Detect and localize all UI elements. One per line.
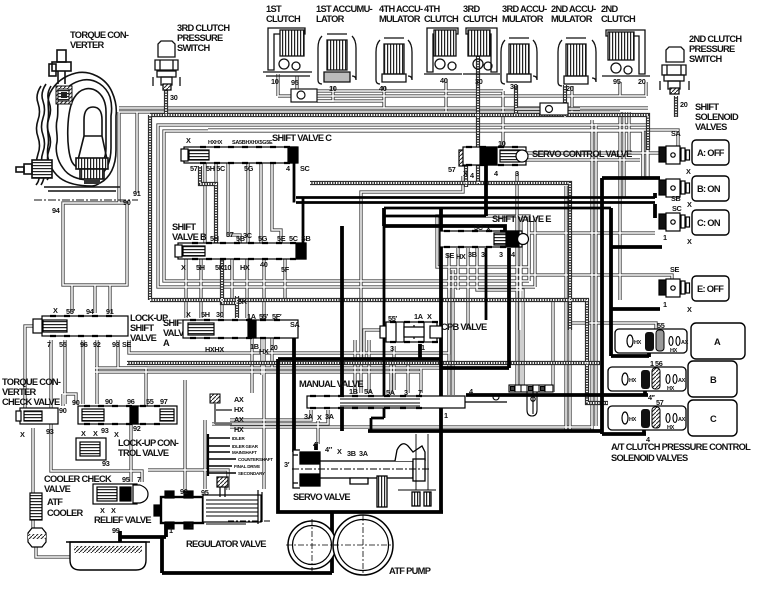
- svg-text:B: ON: B: ON: [697, 184, 721, 194]
- svg-text:2ND: 2ND: [601, 4, 618, 14]
- svg-text:93: 93: [101, 426, 109, 435]
- svg-text:C: ON: C: ON: [697, 218, 721, 228]
- svg-text:SWITCH: SWITCH: [177, 43, 210, 53]
- svg-text:3: 3: [499, 250, 503, 259]
- svg-text:5C: 5C: [289, 234, 299, 243]
- svg-text:SE: SE: [122, 340, 132, 349]
- svg-text:30: 30: [170, 93, 178, 102]
- svg-text:SE: SE: [445, 251, 455, 260]
- svg-text:SOLENOID: SOLENOID: [695, 112, 739, 122]
- svg-text:3A: 3A: [325, 412, 335, 421]
- svg-text:X: X: [53, 306, 58, 315]
- svg-text:CHECK VALVE: CHECK VALVE: [2, 397, 60, 407]
- svg-text:1: 1: [421, 343, 425, 352]
- svg-text:X: X: [111, 506, 116, 515]
- svg-text:1A: 1A: [414, 312, 424, 321]
- svg-text:5B: 5B: [236, 234, 245, 243]
- svg-text:90: 90: [123, 198, 131, 207]
- svg-text:2ND CLUTCH: 2ND CLUTCH: [689, 34, 742, 44]
- svg-text:X: X: [687, 305, 692, 314]
- svg-text:1A: 1A: [247, 312, 257, 321]
- svg-text:X: X: [186, 310, 191, 319]
- svg-text:X: X: [100, 506, 105, 515]
- svg-text:CLUTCH: CLUTCH: [463, 14, 498, 24]
- svg-text:TORQUE CON-: TORQUE CON-: [2, 377, 61, 387]
- svg-text:55′: 55′: [388, 314, 397, 323]
- svg-text:AX: AX: [678, 417, 686, 423]
- svg-text:4′: 4′: [313, 440, 319, 449]
- svg-text:CPB VALVE: CPB VALVE: [441, 322, 487, 332]
- svg-text:HX: HX: [240, 263, 250, 272]
- svg-text:SHIFT: SHIFT: [130, 323, 154, 333]
- svg-text:3RD: 3RD: [463, 4, 480, 14]
- svg-text:4′′: 4′′: [648, 393, 655, 402]
- svg-text:40: 40: [260, 260, 268, 269]
- svg-text:VALVES: VALVES: [695, 122, 727, 132]
- svg-text:55′: 55′: [66, 307, 75, 316]
- svg-text:HX: HX: [670, 348, 678, 354]
- svg-text:4″: 4″: [325, 445, 333, 454]
- svg-text:SA5BHXHX5G5E: SA5BHXHX5G5E: [232, 140, 273, 146]
- svg-text:1: 1: [663, 233, 667, 242]
- svg-text:3B: 3B: [347, 449, 356, 458]
- svg-text:X: X: [687, 237, 692, 246]
- svg-text:92: 92: [93, 340, 101, 349]
- svg-text:AX: AX: [681, 340, 689, 346]
- svg-text:93: 93: [112, 340, 120, 349]
- svg-text:7: 7: [137, 475, 141, 484]
- svg-text:AX: AX: [234, 415, 244, 424]
- svg-text:COUNTERSHAFT: COUNTERSHAFT: [238, 457, 273, 462]
- svg-text:3: 3: [404, 388, 408, 397]
- svg-text:90: 90: [72, 398, 80, 407]
- svg-text:SC: SC: [672, 204, 683, 213]
- svg-text:A: A: [714, 337, 721, 347]
- svg-text:1B: 1B: [250, 342, 259, 351]
- svg-text:X: X: [81, 429, 86, 438]
- svg-text:3RD CLUTCH: 3RD CLUTCH: [177, 23, 230, 33]
- svg-text:E: OFF: E: OFF: [697, 284, 724, 294]
- svg-text:91: 91: [133, 189, 141, 198]
- svg-text:HXHX: HXHX: [205, 345, 224, 354]
- svg-text:VERTER: VERTER: [2, 387, 36, 397]
- svg-text:1: 1: [189, 521, 193, 530]
- svg-text:92: 92: [133, 424, 141, 433]
- svg-text:A/T CLUTCH PRESSURE CONTROL: A/T CLUTCH PRESSURE CONTROL: [611, 442, 751, 452]
- svg-text:90: 90: [105, 397, 113, 406]
- svg-text:7: 7: [47, 340, 51, 349]
- svg-text:X: X: [317, 413, 322, 422]
- svg-text:TORQUE CON-: TORQUE CON-: [70, 30, 129, 40]
- svg-text:SWITCH: SWITCH: [689, 54, 722, 64]
- svg-text:3′: 3′: [481, 250, 487, 259]
- svg-text:HX: HX: [234, 425, 244, 434]
- svg-text:X: X: [427, 312, 432, 321]
- svg-text:CLUTCH: CLUTCH: [424, 14, 459, 24]
- svg-text:3: 3: [515, 169, 519, 178]
- svg-text:AX: AX: [234, 395, 244, 404]
- svg-text:99: 99: [112, 526, 120, 535]
- svg-text:X: X: [463, 169, 468, 178]
- svg-text:CLUTCH: CLUTCH: [601, 14, 636, 24]
- svg-text:55: 55: [59, 340, 67, 349]
- svg-text:C: C: [710, 414, 717, 424]
- svg-text:93: 93: [46, 427, 54, 436]
- svg-text:COOLER: COOLER: [47, 508, 84, 518]
- svg-text:3: 3: [390, 344, 394, 353]
- svg-text:MULATOR: MULATOR: [502, 14, 544, 24]
- svg-text:10: 10: [498, 139, 506, 148]
- svg-text:SB: SB: [671, 194, 681, 203]
- svg-text:CLUTCH: CLUTCH: [266, 14, 301, 24]
- svg-text:7: 7: [418, 388, 422, 397]
- svg-text:5E: 5E: [277, 234, 286, 243]
- svg-text:3C: 3C: [474, 223, 484, 232]
- svg-text:X: X: [186, 136, 191, 145]
- svg-text:55: 55: [146, 397, 154, 406]
- svg-text:HX: HX: [634, 340, 642, 346]
- svg-text:93: 93: [102, 459, 110, 468]
- svg-text:MULATOR: MULATOR: [551, 14, 593, 24]
- svg-text:HXHX: HXHX: [208, 140, 223, 146]
- svg-text:20: 20: [638, 77, 646, 86]
- svg-text:1ST ACCUMU-: 1ST ACCUMU-: [316, 4, 373, 14]
- svg-text:2ND ACCU-: 2ND ACCU-: [551, 4, 596, 14]
- svg-text:20: 20: [680, 100, 688, 109]
- svg-text:SA: SA: [671, 129, 682, 138]
- svg-text:5F: 5F: [281, 265, 290, 274]
- svg-text:4TH: 4TH: [424, 4, 440, 14]
- svg-text:5H 5C: 5H 5C: [206, 164, 226, 173]
- svg-text:SOLENOID VALVES: SOLENOID VALVES: [611, 453, 688, 463]
- svg-text:1: 1: [169, 526, 173, 535]
- svg-text:1: 1: [663, 300, 667, 309]
- svg-text:HX: HX: [667, 386, 675, 392]
- svg-text:HX: HX: [629, 378, 637, 384]
- svg-text:1: 1: [444, 411, 448, 420]
- svg-text:MULATOR: MULATOR: [379, 14, 421, 24]
- svg-text:HX: HX: [234, 405, 244, 414]
- svg-text:5G: 5G: [244, 164, 254, 173]
- svg-text:5G: 5G: [258, 234, 268, 243]
- svg-text:5K10: 5K10: [215, 263, 231, 272]
- svg-text:AX: AX: [678, 378, 686, 384]
- svg-text:HX: HX: [629, 417, 637, 423]
- svg-text:X: X: [687, 200, 692, 209]
- svg-text:20: 20: [566, 84, 574, 93]
- svg-text:1ST: 1ST: [266, 4, 282, 14]
- svg-text:HX: HX: [259, 347, 269, 356]
- svg-text:90: 90: [59, 406, 67, 415]
- svg-text:91: 91: [106, 307, 114, 316]
- svg-text:IDLER: IDLER: [232, 436, 245, 441]
- svg-text:92: 92: [180, 487, 188, 496]
- svg-text:SERVO CONTROL VALVE: SERVO CONTROL VALVE: [532, 149, 632, 159]
- svg-text:95: 95: [201, 488, 209, 497]
- svg-text:5H: 5H: [196, 263, 205, 272]
- svg-text:SHIFT: SHIFT: [172, 222, 196, 232]
- svg-text:LATOR: LATOR: [316, 14, 345, 24]
- svg-text:55′: 55′: [259, 312, 268, 321]
- svg-text:5K: 5K: [238, 297, 248, 306]
- svg-text:4TH ACCU-: 4TH ACCU-: [379, 4, 423, 14]
- svg-text:94: 94: [52, 206, 61, 215]
- svg-text:30: 30: [510, 82, 518, 91]
- svg-text:40: 40: [379, 84, 387, 93]
- svg-text:5A: 5A: [364, 387, 374, 396]
- svg-text:X: X: [20, 430, 25, 439]
- svg-text:A: A: [163, 338, 170, 348]
- svg-text:A: OFF: A: OFF: [697, 148, 725, 158]
- svg-text:SA: SA: [290, 320, 301, 329]
- svg-text:X: X: [486, 224, 491, 233]
- svg-text:SECONDARY: SECONDARY: [238, 471, 265, 476]
- svg-text:B: B: [710, 375, 717, 385]
- svg-text:94: 94: [86, 307, 95, 316]
- svg-text:X: X: [181, 263, 186, 272]
- svg-text:57: 57: [226, 230, 234, 239]
- svg-text:COOLER CHECK: COOLER CHECK: [44, 474, 112, 484]
- svg-text:5H: 5H: [210, 234, 219, 243]
- svg-text:IDLER GEAR: IDLER GEAR: [232, 444, 259, 449]
- svg-text:VALVE: VALVE: [130, 333, 157, 343]
- svg-text:95: 95: [613, 77, 621, 86]
- svg-text:PRESSURE: PRESSURE: [689, 44, 735, 54]
- svg-text:VALVE B: VALVE B: [172, 232, 207, 242]
- svg-text:SE: SE: [670, 265, 680, 274]
- svg-text:57: 57: [448, 165, 456, 174]
- svg-text:X: X: [93, 429, 98, 438]
- svg-text:3A: 3A: [359, 449, 369, 458]
- svg-text:REGULATOR VALVE: REGULATOR VALVE: [186, 539, 266, 549]
- svg-text:VALVE: VALVE: [44, 484, 71, 494]
- svg-text:FINAL DRIVE: FINAL DRIVE: [234, 464, 260, 469]
- svg-text:5A: 5A: [386, 388, 396, 397]
- svg-text:ATF PUMP: ATF PUMP: [389, 566, 431, 576]
- svg-text:30: 30: [216, 310, 224, 319]
- svg-text:3A: 3A: [304, 412, 314, 421]
- svg-text:PRESSURE: PRESSURE: [177, 33, 223, 43]
- svg-text:40: 40: [440, 76, 448, 85]
- svg-text:95: 95: [291, 78, 299, 87]
- svg-text:VERTER: VERTER: [70, 40, 104, 50]
- svg-text:10: 10: [271, 77, 279, 86]
- svg-text:SB: SB: [301, 234, 311, 243]
- svg-text:SHIFT VALVE E: SHIFT VALVE E: [492, 214, 551, 224]
- svg-text:5F′: 5F′: [272, 312, 282, 321]
- svg-text:SHIFT: SHIFT: [695, 102, 719, 112]
- svg-text:SC: SC: [300, 164, 311, 173]
- svg-text:3RD ACCU-: 3RD ACCU-: [502, 4, 547, 14]
- svg-text:20: 20: [270, 343, 278, 352]
- svg-text:X: X: [337, 447, 342, 456]
- svg-text:97: 97: [160, 397, 168, 406]
- svg-text:SHIFT VALVE C: SHIFT VALVE C: [272, 133, 332, 143]
- svg-text:SERVO VALVE: SERVO VALVE: [293, 492, 350, 502]
- svg-text:5H: 5H: [201, 310, 210, 319]
- svg-text:96: 96: [127, 397, 135, 406]
- svg-text:LOCK-UP CON-: LOCK-UP CON-: [118, 438, 179, 448]
- svg-text:HX: HX: [456, 252, 466, 261]
- svg-text:3B: 3B: [468, 250, 477, 259]
- svg-text:MAINSHAFT: MAINSHAFT: [232, 450, 257, 455]
- svg-text:HX: HX: [667, 425, 675, 431]
- svg-text:95: 95: [122, 475, 130, 484]
- svg-text:10: 10: [329, 84, 337, 93]
- svg-text:X: X: [686, 167, 691, 176]
- svg-text:TROL VALVE: TROL VALVE: [118, 448, 169, 458]
- svg-text:57: 57: [190, 164, 198, 173]
- svg-text:ATF: ATF: [47, 497, 63, 507]
- svg-text:RELIEF VALVE: RELIEF VALVE: [94, 515, 151, 525]
- svg-text:3′: 3′: [284, 460, 290, 469]
- svg-text:1B: 1B: [349, 387, 358, 396]
- svg-text:30: 30: [475, 77, 483, 86]
- svg-text:96: 96: [80, 340, 88, 349]
